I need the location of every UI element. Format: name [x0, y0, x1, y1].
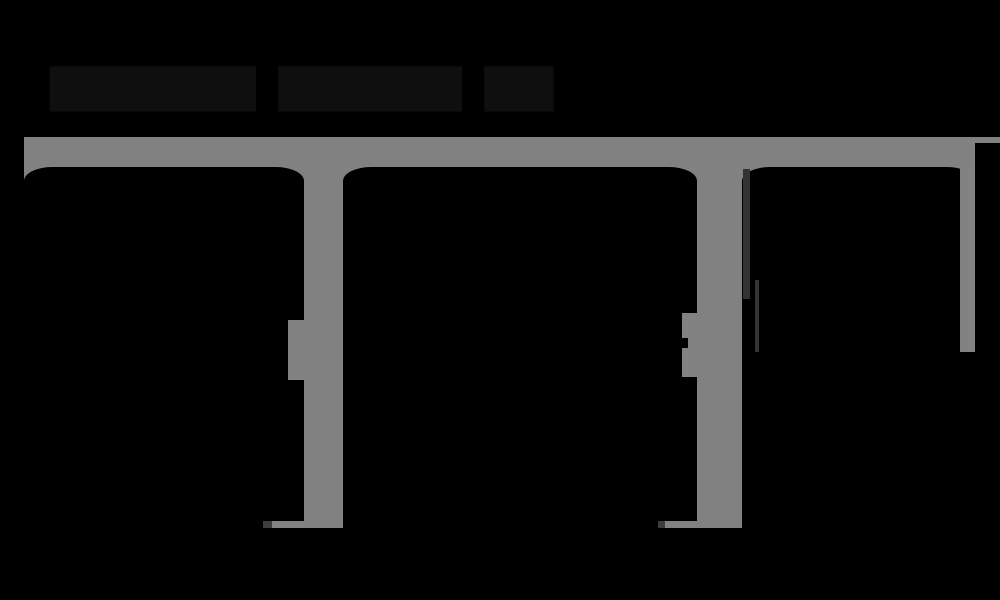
panel-3-vertical-scrollbar-thumb[interactable]	[960, 167, 975, 352]
panel-container	[24, 137, 975, 528]
panel-3	[742, 167, 975, 528]
page-title: █████████ ████████ ███	[50, 66, 553, 112]
panel-1-horizontal-scrollbar-lead	[263, 521, 272, 528]
panel-2	[343, 167, 697, 528]
panel-1	[24, 167, 304, 528]
panel-2-vertical-scrollbar-thumb-upper[interactable]	[682, 313, 697, 338]
panel-2-horizontal-scrollbar-lead	[658, 521, 665, 528]
panel-2-horizontal-scrollbar-thumb[interactable]	[665, 521, 697, 528]
panel-3-inner-edge-line	[755, 280, 759, 352]
top-bar-right-extension	[975, 137, 1000, 143]
page-background: █████████ ████████ ███	[0, 0, 1000, 600]
panel-1-vertical-scrollbar-thumb[interactable]	[288, 320, 304, 380]
panel-divider-1	[304, 167, 343, 528]
panel-3-left-edge-line	[743, 169, 750, 299]
panel-2-vertical-scrollbar-thumb-lower[interactable]	[682, 348, 697, 377]
panel-1-horizontal-scrollbar-thumb[interactable]	[272, 521, 304, 528]
panel-divider-2	[697, 167, 742, 528]
